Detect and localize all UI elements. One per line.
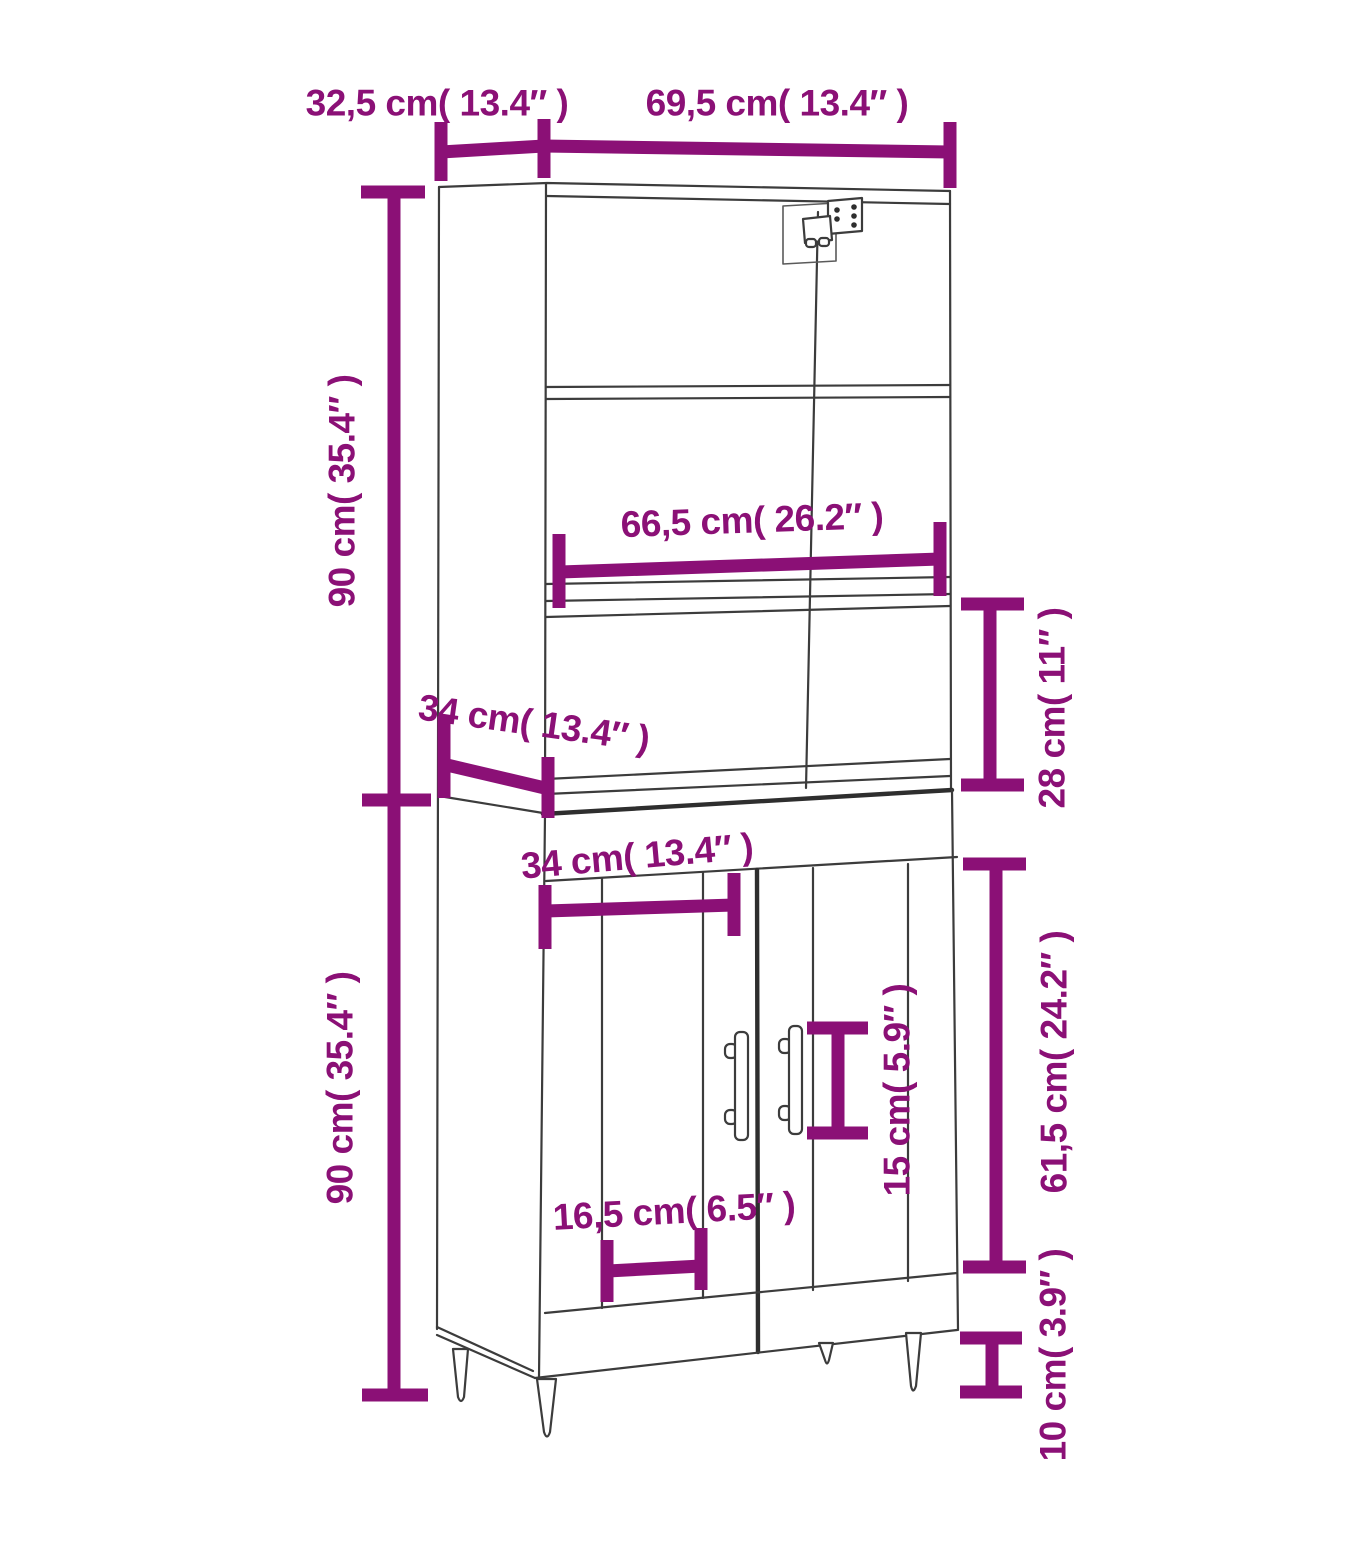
bracket-body <box>828 198 862 234</box>
dim-top-depth-and-width <box>441 119 950 188</box>
dim-lower-height <box>362 800 431 1396</box>
dim-door-height <box>963 864 1026 1268</box>
dimension-label-upper-height: 90 cm( 35.4″ ) <box>324 375 361 608</box>
bracket-foot <box>806 239 816 247</box>
plinth-bottom-edge <box>535 1330 957 1378</box>
dim-door-panel-width <box>607 1228 701 1302</box>
dim-leg-height <box>960 1338 1022 1392</box>
dim-shelf-gap-height <box>961 604 1024 785</box>
upper-right-edge <box>950 191 951 788</box>
leg-front-right <box>906 1333 921 1391</box>
leg-back-right <box>819 1343 833 1364</box>
leg-front-left <box>537 1379 556 1437</box>
hutch-bottom-edge <box>546 759 950 794</box>
base-top-edge <box>543 790 952 814</box>
product-dimension-diagram: 32,5 cm( 13.4″ ) 69,5 cm( 13.4″ ) 90 cm(… <box>0 0 1360 1555</box>
top-inner-edge <box>547 196 950 204</box>
middle-shelf <box>546 577 950 617</box>
lower-right-edge <box>952 790 958 1330</box>
dimension-label-door-height: 61,5 cm( 24.2″ ) <box>1036 931 1073 1194</box>
dimension-label-top-width: 69,5 cm( 13.4″ ) <box>646 85 909 122</box>
dim-upper-height <box>361 192 425 800</box>
dim-lower-inner-width <box>545 873 734 949</box>
dimension-label-lower-height: 90 cm( 35.4″ ) <box>322 972 359 1205</box>
cabinet-diagram-canvas <box>0 0 1360 1555</box>
junction-side-edge <box>439 796 543 813</box>
top-edge <box>439 183 950 191</box>
leg-back-left <box>453 1349 468 1401</box>
dimension-label-shelf-gap-height: 28 cm( 11″ ) <box>1034 608 1071 809</box>
dim-handle-height <box>807 1027 868 1134</box>
dimension-label-shelf-width: 66,5 cm( 26.2″ ) <box>620 497 884 543</box>
dimension-label-leg-height: 10 cm( 3.9″ ) <box>1035 1249 1072 1462</box>
door-divider <box>757 870 758 1352</box>
handle-bar <box>789 1026 802 1134</box>
plinth-side-edge <box>437 1327 535 1378</box>
upper-shelf <box>546 385 950 399</box>
wall-mount-bracket <box>783 198 862 264</box>
door-handle-left <box>725 1032 748 1140</box>
dimension-label-handle-height: 15 cm( 5.9″ ) <box>879 984 916 1197</box>
dimension-label-top-depth: 32,5 cm( 13.4″ ) <box>306 85 569 122</box>
bracket-foot <box>819 238 829 246</box>
handle-bar <box>735 1032 748 1140</box>
door-handle-right <box>779 1026 802 1134</box>
